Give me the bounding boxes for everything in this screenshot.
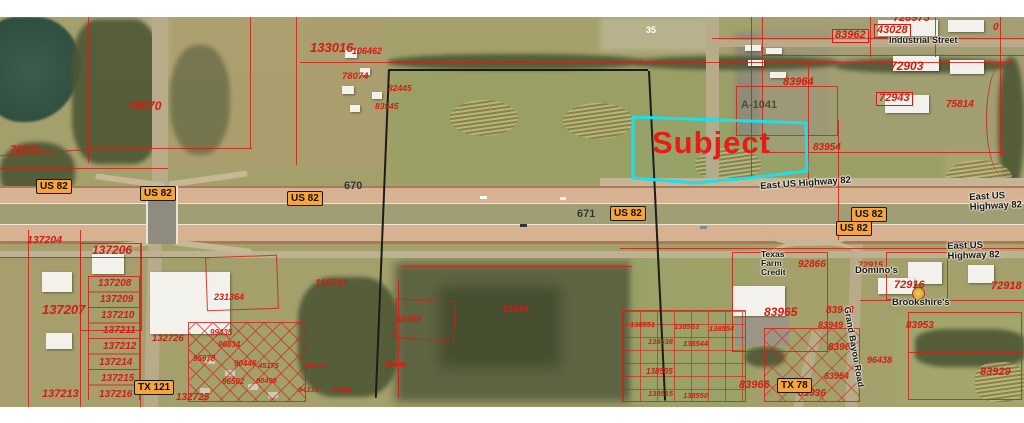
highway-shield-tx-121: TX 121 bbox=[134, 380, 174, 395]
highway-shield-us-82: US 82 bbox=[140, 186, 176, 201]
highway-shield-us-82: US 82 bbox=[610, 206, 646, 221]
top-white-margin bbox=[0, 0, 1024, 17]
highway-shield-us-82: US 82 bbox=[851, 207, 887, 222]
highway-shield-us-82: US 82 bbox=[287, 191, 323, 206]
highway-shield-tx-78: TX 78 bbox=[777, 378, 812, 393]
highway-shield-us-82: US 82 bbox=[36, 179, 72, 194]
aerial-parcel-map: Subject780617807013301610646278074824458… bbox=[0, 0, 1024, 423]
highway-shield-us-82: US 82 bbox=[836, 221, 872, 236]
highway-shields-layer: US 82US 82US 82US 82US 82US 82TX 121TX 7… bbox=[0, 0, 1024, 423]
bottom-white-margin bbox=[0, 407, 1024, 423]
